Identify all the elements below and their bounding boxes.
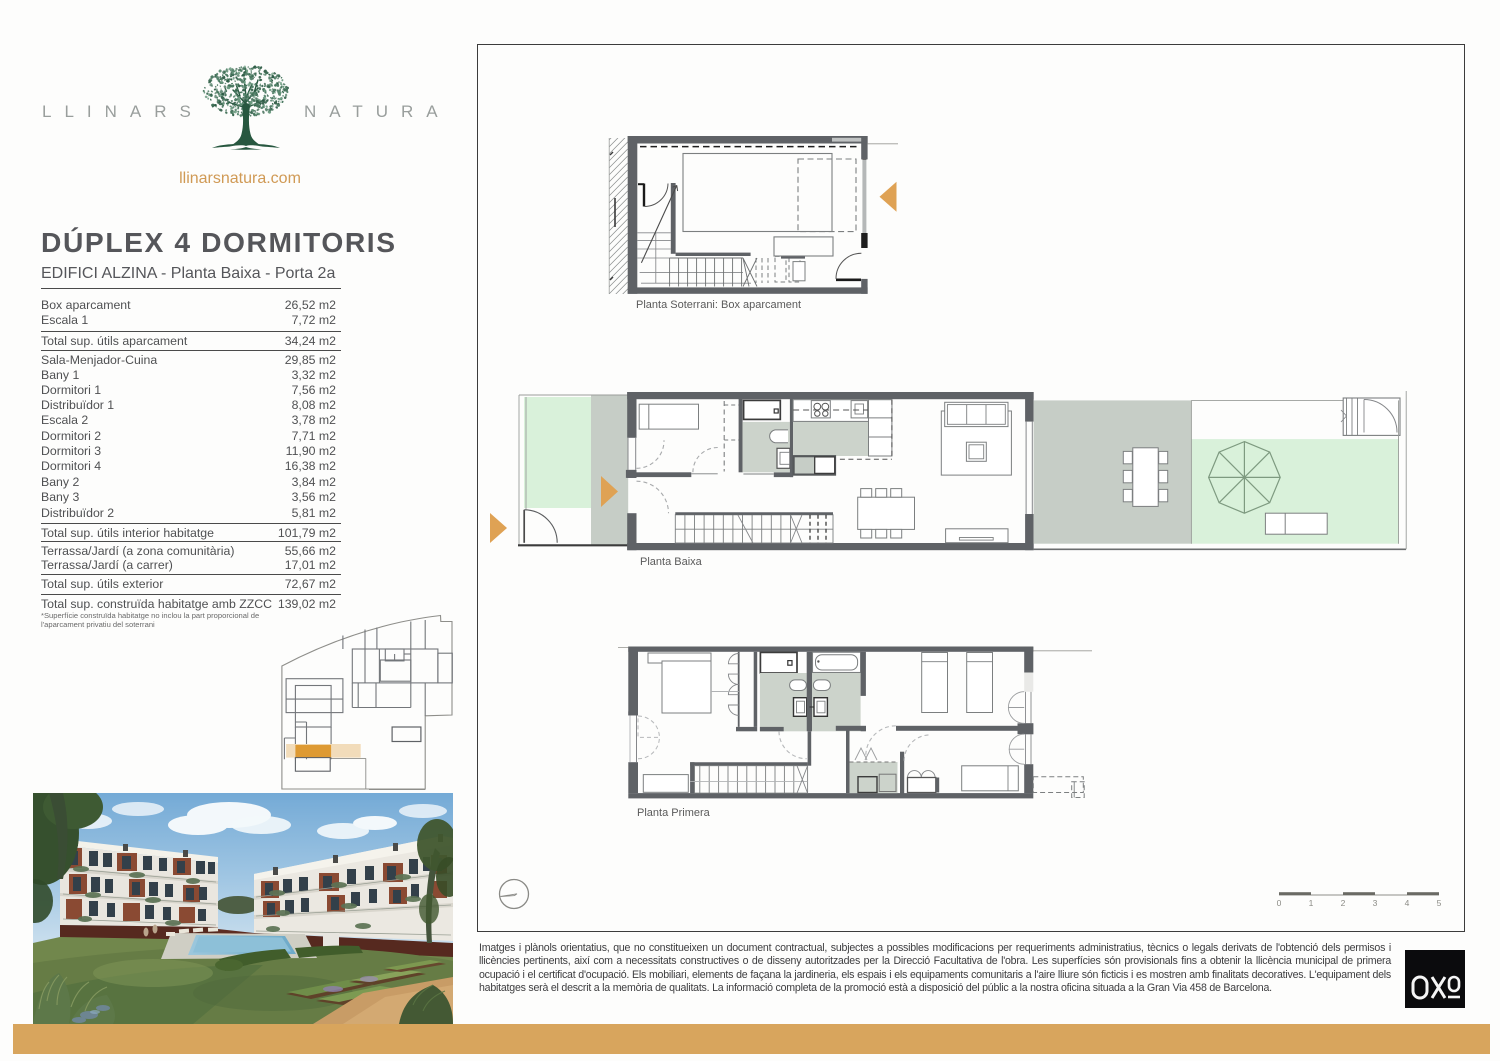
svg-text:5: 5	[1437, 898, 1442, 908]
svg-text:0: 0	[1277, 898, 1282, 908]
svg-text:3: 3	[1373, 898, 1378, 908]
svg-text:4: 4	[1405, 898, 1410, 908]
svg-text:2: 2	[1341, 898, 1346, 908]
svg-text:1: 1	[1309, 898, 1314, 908]
